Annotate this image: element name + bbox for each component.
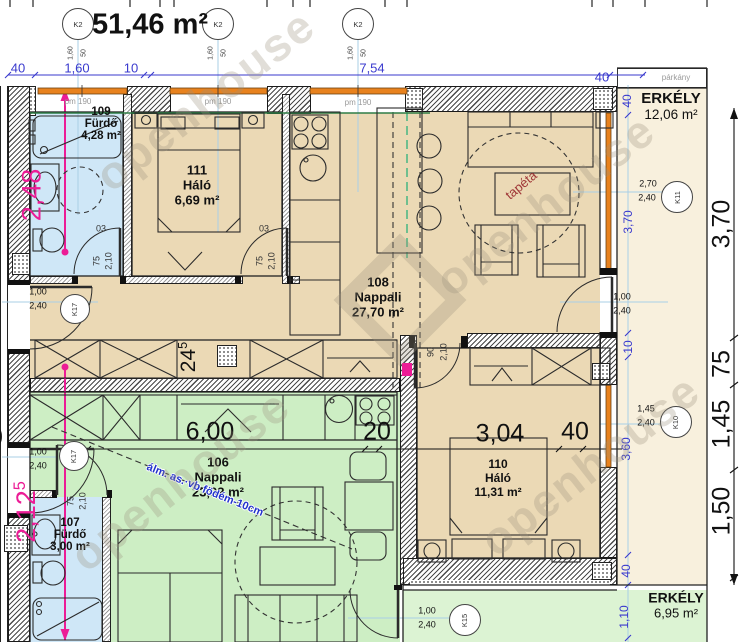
k15-w: 1,00 — [418, 607, 436, 616]
room-label-balcony-bottom: ERKÉLY 6,95 m² — [648, 590, 704, 621]
rblue-360: 3,60 — [620, 437, 632, 460]
room-label-109: 109Fürdő4,28 m² — [81, 106, 121, 142]
idim-600: 6,00 — [186, 420, 235, 445]
parkany-label: párkány — [662, 74, 690, 82]
room-label-110: 110Háló11,31 m² — [474, 457, 521, 499]
rblue-10: 10 — [622, 340, 634, 353]
door-code-111: 03 — [259, 225, 269, 234]
door-109-h: 2,10 — [105, 252, 114, 270]
k11-h: 2,40 — [638, 194, 656, 203]
entry-upper-w: 1,00 — [29, 288, 47, 297]
rblack-75: 75 — [710, 350, 735, 378]
room-label-108: 108Nappali27,70 m² — [352, 275, 404, 320]
mdim-248: 2,48 — [19, 169, 46, 222]
parapet-label-3: pm 190 — [345, 99, 372, 107]
grid-sub-1a: 1,60 — [68, 46, 75, 60]
grid-sub-2b: 50 — [221, 49, 228, 57]
grid-sub-1b: 50 — [81, 49, 88, 57]
page-title: 51,46 m² — [92, 11, 208, 40]
grid-sub-3a: 1,60 — [348, 46, 355, 60]
rblack-370: 3,70 — [710, 200, 735, 249]
door-110-h: 2,10 — [440, 343, 449, 361]
magenta-dims — [61, 89, 413, 641]
door-107-h: 2,10 — [79, 492, 88, 510]
door-jambs — [8, 268, 617, 590]
door-109-w: 75 — [93, 256, 102, 266]
k11-w: 2,70 — [639, 180, 657, 189]
door-bubble-k15: K15 — [449, 604, 481, 636]
entry-lower-w: 1,00 — [29, 448, 47, 457]
window-bubble-k10: K10 — [660, 406, 692, 438]
door-bubble-k17-upper: K17 — [60, 294, 90, 324]
door-111-h: 2,10 — [268, 252, 277, 270]
parapet-label-2: pm 190 — [205, 98, 232, 106]
room-label-balcony-top: ERKÉLY 12,06 m² — [641, 90, 700, 122]
edge-clipped-dim: 0 — [0, 426, 3, 451]
grid-bubble-k2-1: K2 — [62, 8, 94, 40]
k15-h: 2,40 — [418, 621, 436, 630]
room-label-111: 111Háló6,69 m² — [175, 163, 220, 208]
rblack-145: 1,45 — [710, 400, 735, 449]
rblue-110: 1,10 — [618, 605, 630, 628]
door-swings — [30, 228, 612, 638]
door-110-w: 90 — [427, 347, 436, 357]
idim-40: 40 — [561, 420, 589, 445]
rblue-370: 3,70 — [622, 210, 634, 233]
grid-sub-3b: 50 — [361, 49, 368, 57]
door-code-109: 03 — [96, 225, 106, 234]
grid-sub-2a: 1,60 — [208, 46, 215, 60]
entry-upper-h: 2,40 — [29, 302, 47, 311]
grid-bubble-k2-3: K2 — [342, 8, 374, 40]
k10-w: 1,45 — [637, 405, 655, 414]
door-bubble-k17-lower: K17 — [59, 441, 89, 471]
top-dim-754: 7,54 — [359, 62, 384, 75]
k10-h: 2,40 — [637, 419, 655, 428]
entry-lower-h: 2,40 — [29, 462, 47, 471]
rblue-40b: 40 — [620, 564, 632, 577]
top-dim-10: 10 — [124, 62, 138, 75]
room-label-107: 107Fürdő3,00 m² — [50, 517, 90, 553]
balcony-door-upper-h: 2,40 — [613, 307, 631, 316]
blue-dim-lines — [5, 72, 646, 641]
idim-20: 20 — [363, 420, 391, 445]
door-107-w: 75 — [67, 496, 76, 506]
top-dim-160: 1,60 — [64, 62, 89, 75]
wall-thickness-245: 245 — [177, 342, 199, 372]
idim-304: 3,04 — [476, 422, 525, 447]
balcony-door-upper-w: 1,00 — [613, 293, 631, 302]
top-edge-ticks — [10, 0, 707, 7]
rblack-150: 1,50 — [710, 487, 735, 536]
floor-plan-canvas: K2 K2 K2 K17 K17 K11 K10 K15 51,46 m² 1,… — [0, 0, 753, 642]
grid-bubble-label: K2 — [73, 20, 82, 29]
top-dim-40a: 40 — [11, 62, 25, 75]
mdim-2125: 2,125 — [12, 481, 40, 543]
plan-linework — [0, 0, 753, 642]
door-111-w: 75 — [256, 256, 265, 266]
door-leaves — [30, 228, 612, 638]
parapet-label-1: pm 190 — [65, 98, 92, 106]
rblue-40a: 40 — [621, 94, 633, 107]
window-bubble-k11: K11 — [661, 181, 693, 213]
top-dim-40b: 40 — [595, 71, 609, 84]
